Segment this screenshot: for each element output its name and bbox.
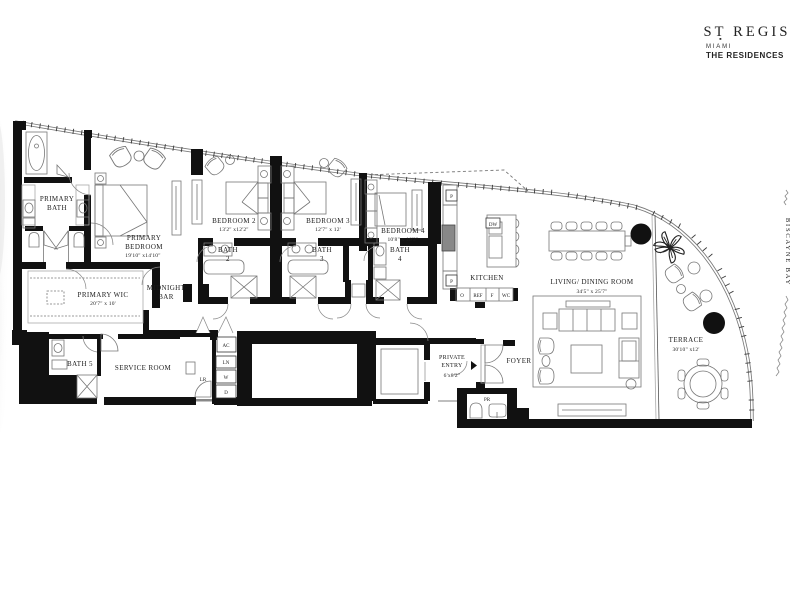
svg-text:PRIMARY: PRIMARY <box>127 234 161 242</box>
svg-text:TERRACE: TERRACE <box>669 336 704 344</box>
svg-text:13'2" x12'2": 13'2" x12'2" <box>219 227 249 233</box>
svg-text:12'7" x 12': 12'7" x 12' <box>315 227 341 233</box>
svg-text:BEDROOM: BEDROOM <box>125 243 163 251</box>
svg-text:THE RESIDENCES: THE RESIDENCES <box>706 51 784 60</box>
svg-text:F: F <box>491 294 494 299</box>
svg-text:BATH: BATH <box>390 246 410 254</box>
svg-text:ENTRY: ENTRY <box>441 363 463 369</box>
svg-text:BEDROOM 4: BEDROOM 4 <box>381 227 425 235</box>
svg-text:MIDNIGHT: MIDNIGHT <box>147 284 186 292</box>
svg-text:WC: WC <box>502 294 511 299</box>
svg-text:O: O <box>460 294 464 299</box>
svg-text:SERVICE ROOM: SERVICE ROOM <box>115 364 172 372</box>
svg-text:4: 4 <box>398 255 402 263</box>
svg-text:PRIMARY WIC: PRIMARY WIC <box>78 291 129 299</box>
svg-text:PRIVATE: PRIVATE <box>439 355 465 361</box>
svg-text:ST REGIS: ST REGIS <box>704 24 791 40</box>
svg-text:2: 2 <box>226 255 230 263</box>
svg-text:BEDROOM 3: BEDROOM 3 <box>306 217 350 225</box>
svg-text:6'x8'2": 6'x8'2" <box>444 373 461 379</box>
svg-text:LR: LR <box>200 378 207 383</box>
svg-text:BATH: BATH <box>218 246 238 254</box>
svg-text:AC: AC <box>223 344 231 349</box>
svg-text:3: 3 <box>320 255 324 263</box>
svg-text:19'10" x14'10": 19'10" x14'10" <box>125 253 160 259</box>
svg-text:BISCAYNE BAY: BISCAYNE BAY <box>784 218 791 286</box>
svg-text:LIVING/ DINING ROOM: LIVING/ DINING ROOM <box>550 278 633 286</box>
svg-text:BATH: BATH <box>47 204 67 212</box>
svg-text:D: D <box>224 391 228 396</box>
svg-text:KITCHEN: KITCHEN <box>470 274 504 282</box>
svg-text:W: W <box>224 376 229 381</box>
svg-text:PR: PR <box>484 398 491 403</box>
svg-text:LN: LN <box>223 361 230 366</box>
svg-text:BATH: BATH <box>312 246 332 254</box>
svg-text:BATH 5: BATH 5 <box>67 360 93 368</box>
svg-text:BAR: BAR <box>158 293 174 301</box>
svg-text:34'5" x 25'7": 34'5" x 25'7" <box>576 289 607 295</box>
svg-text:PRIMARY: PRIMARY <box>40 195 74 203</box>
svg-text:REF: REF <box>473 294 482 299</box>
svg-text:20'7" x 10': 20'7" x 10' <box>90 301 116 307</box>
svg-text:FOYER: FOYER <box>507 357 532 365</box>
svg-text:BEDROOM 2: BEDROOM 2 <box>212 217 256 225</box>
svg-text:DW: DW <box>489 223 498 228</box>
svg-text:10'8" x 16'2": 10'8" x 16'2" <box>387 237 418 243</box>
svg-text:30'10" x12': 30'10" x12' <box>672 347 699 353</box>
svg-text:P: P <box>450 195 453 200</box>
svg-text:MIAMI: MIAMI <box>706 44 732 50</box>
svg-text:P: P <box>450 280 453 285</box>
